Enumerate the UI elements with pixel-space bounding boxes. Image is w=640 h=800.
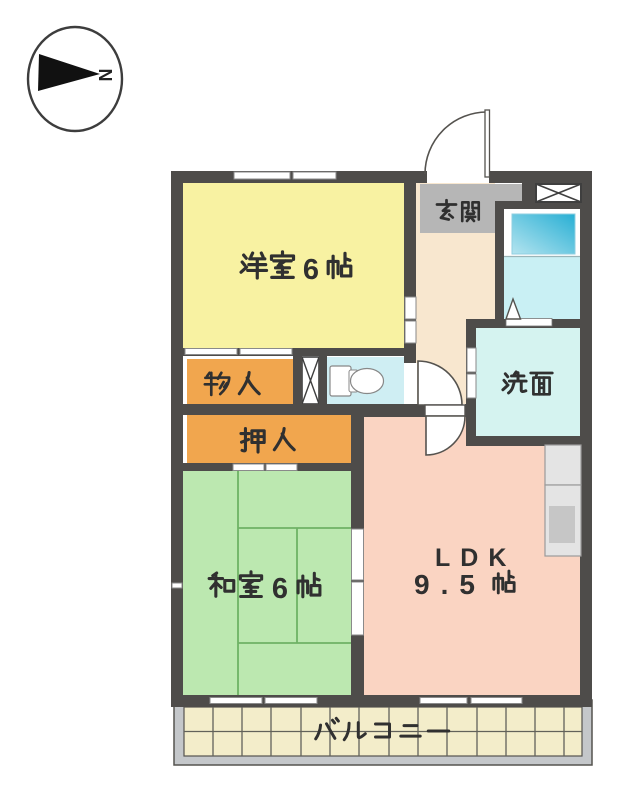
svg-text:6: 6 [272, 573, 288, 605]
svg-text:9.5: 9.5 [414, 569, 486, 600]
svg-text:N: N [95, 69, 115, 82]
svg-text:LDK: LDK [435, 544, 516, 572]
svg-text:6: 6 [303, 254, 319, 286]
